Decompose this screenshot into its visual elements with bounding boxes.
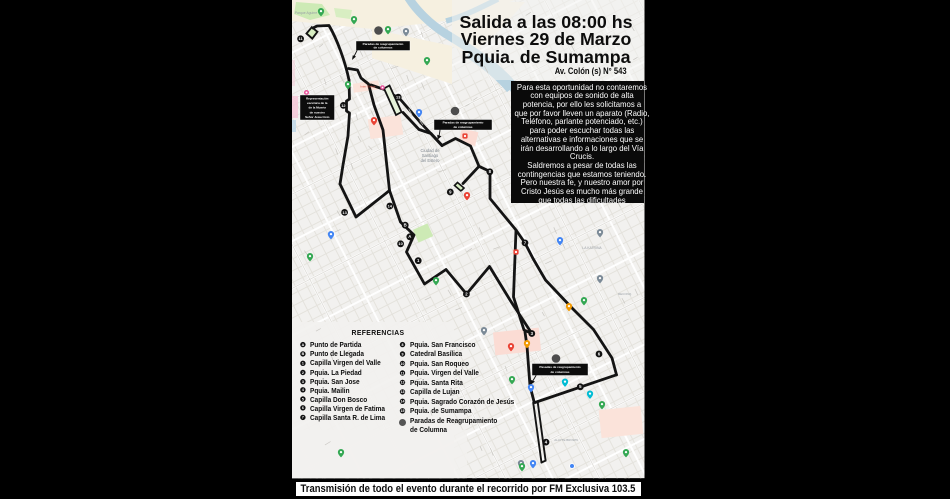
svg-text:escénica de la: escénica de la (307, 101, 328, 105)
svg-text:1: 1 (302, 362, 304, 366)
svg-text:de columnas: de columnas (454, 125, 473, 129)
svg-text:11: 11 (401, 371, 405, 375)
svg-text:Inter Sisbor: Inter Sisbor (360, 85, 375, 89)
svg-text:Representación: Representación (306, 96, 329, 100)
svg-text:RECONQ.: RECONQ. (618, 292, 632, 296)
svg-text:Señor Jesucristo: Señor Jesucristo (305, 115, 330, 119)
svg-text:13: 13 (401, 390, 405, 394)
svg-text:de la Muerte: de la Muerte (308, 106, 326, 110)
svg-text:15: 15 (401, 409, 405, 413)
svg-text:de columnas: de columnas (551, 370, 570, 374)
svg-text:12: 12 (401, 381, 405, 385)
svg-text:6: 6 (302, 406, 304, 410)
svg-text:Pasadas de reagrupamiento: Pasadas de reagrupamiento (539, 365, 580, 369)
svg-text:de columnas: de columnas (374, 46, 393, 50)
svg-text:2: 2 (302, 371, 304, 375)
svg-text:del Estero: del Estero (421, 158, 441, 163)
svg-text:de nuestro: de nuestro (310, 110, 326, 114)
svg-text:4: 4 (302, 388, 304, 392)
svg-text:LA KATRINA: LA KATRINA (582, 246, 602, 250)
svg-text:7: 7 (302, 416, 304, 420)
svg-text:A: A (408, 234, 411, 239)
svg-text:B: B (404, 223, 407, 228)
svg-text:14: 14 (401, 400, 405, 404)
svg-text:A: A (302, 343, 305, 347)
svg-text:B: B (302, 352, 305, 356)
svg-text:10: 10 (401, 362, 405, 366)
svg-text:9: 9 (402, 352, 404, 356)
svg-text:5: 5 (302, 397, 304, 401)
svg-text:3: 3 (302, 380, 304, 384)
svg-text:10: 10 (398, 241, 402, 246)
svg-text:Parque Aguirre: Parque Aguirre (295, 11, 318, 15)
svg-text:ALAYTE BROWN: ALAYTE BROWN (554, 438, 578, 442)
svg-text:8: 8 (402, 343, 404, 347)
